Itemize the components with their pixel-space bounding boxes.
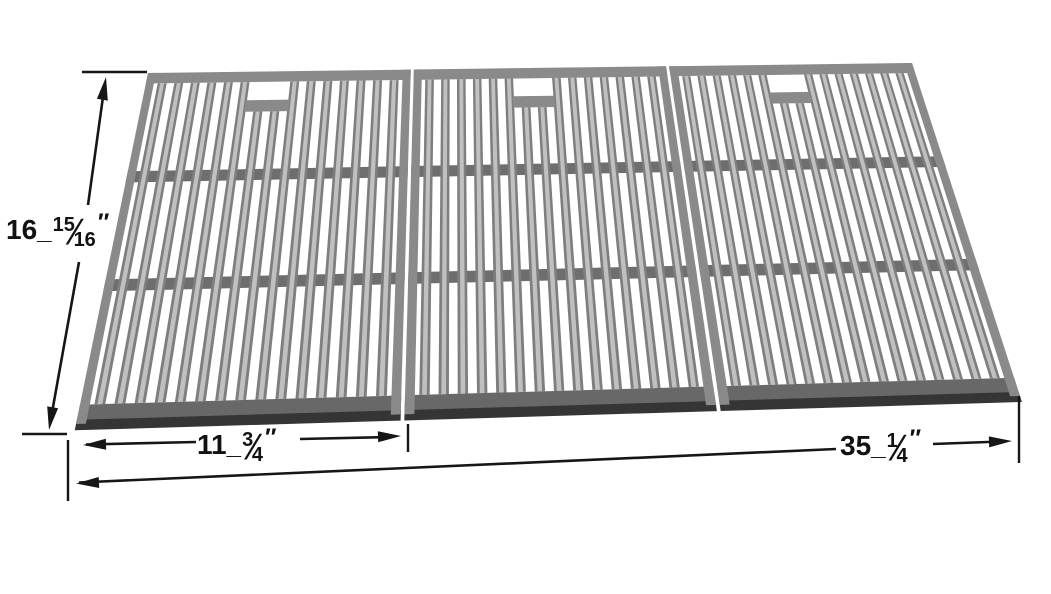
height-arrow-down — [47, 406, 58, 430]
total-width-arrow-right — [989, 436, 1012, 447]
total-width-dim-line — [79, 449, 836, 483]
slot-crossbar — [769, 92, 812, 104]
height-separator: _ — [37, 215, 51, 245]
panel-width-dim-line — [300, 437, 389, 439]
height-whole-number: 16 — [6, 214, 37, 245]
total-width-inch-mark: ″ — [910, 425, 920, 452]
height-dimension-label: 16_15⁄16″ — [6, 211, 107, 250]
frame-top — [669, 63, 915, 76]
total-width-whole-number: 35 — [840, 430, 871, 461]
panel-width-arrow-left — [83, 439, 106, 450]
height-dim-line — [51, 262, 80, 421]
slot-crossbar — [244, 100, 289, 112]
grill-grate-graphic — [0, 0, 1051, 594]
frame-top — [414, 66, 668, 80]
panel-width-separator: _ — [227, 430, 241, 460]
height-arrow-up — [97, 77, 108, 101]
panel-width-inch-mark: ″ — [265, 424, 275, 451]
height-dim-line — [88, 86, 105, 205]
total-width-separator: _ — [871, 431, 885, 461]
total-width-fraction-denominator: 4 — [896, 445, 907, 467]
panel-width-whole-number: 11 — [197, 429, 227, 460]
product-image: 16_15⁄16″ 11_3⁄4″ 35_1⁄4″ — [0, 0, 1051, 594]
height-inch-mark: ″ — [98, 209, 108, 236]
height-fraction-denominator: 16 — [74, 229, 96, 251]
total-width-dimension-label: 35_1⁄4″ — [840, 427, 919, 466]
panel-width-dimension-label: 11_3⁄4″ — [197, 426, 275, 465]
panel-width-fraction-denominator: 4 — [252, 444, 263, 466]
frame-top — [146, 70, 411, 84]
panel-width-arrow-right — [378, 431, 401, 442]
slot-crossbar — [513, 96, 556, 108]
